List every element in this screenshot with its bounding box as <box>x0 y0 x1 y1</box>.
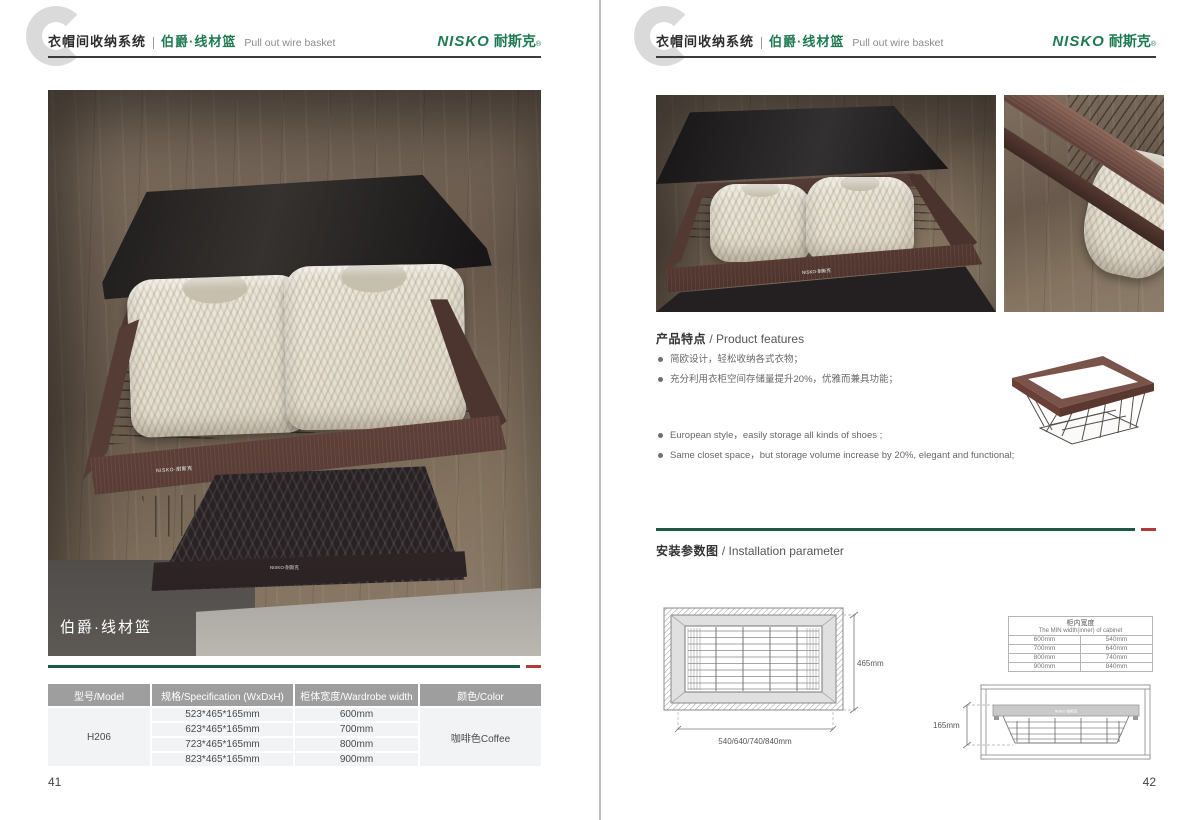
folded-sweater <box>127 274 310 439</box>
spec-cell: 623*465*165mm <box>152 723 293 736</box>
table-row: 700mm640mm <box>1009 645 1153 654</box>
color-cell: 咖啡色Coffee <box>420 708 541 766</box>
table-row: 600mm540mm <box>1009 636 1153 645</box>
registered-mark: ® <box>536 41 541 48</box>
page-divider-line <box>599 0 601 820</box>
brand-logo-cn: 耐斯克 <box>494 31 536 51</box>
width-dimension-label: 540/640/740/840mm <box>718 737 792 746</box>
folded-sweater <box>806 177 915 262</box>
min-width-table-header: 柜内宽度 The MIN width(inner) of cabinet <box>1009 617 1153 636</box>
photo-caption: 伯爵·线材篮 <box>60 616 152 637</box>
width-cell: 700mm <box>295 723 418 736</box>
bullet-icon <box>658 433 663 438</box>
spec-table-header: 柜体宽度/Wardrobe width <box>295 684 418 706</box>
brand-logo-latin: NISKO <box>1052 33 1105 50</box>
brand-logo-cn: 耐斯克 <box>1109 31 1151 51</box>
installation-title-en: / Installation parameter <box>722 544 844 558</box>
bullet-icon <box>658 357 663 362</box>
separator-green-bar <box>656 528 1135 531</box>
spec-cell: 523*465*165mm <box>152 708 293 721</box>
tray-logo-text: NISKO·耐斯克 <box>270 565 299 571</box>
registered-mark: ® <box>1151 41 1156 48</box>
basket-top-photo: NISKO·耐斯克 <box>656 95 996 312</box>
features-list-cn: 简欧设计，轻松收纳各式衣物； 充分利用衣柜空间存储量提升20%，优雅而兼具功能； <box>656 354 996 394</box>
product-title-en: Pull out wire basket <box>852 37 943 49</box>
width-cell: 900mm <box>295 753 418 766</box>
spec-table-header: 型号/Model <box>48 684 150 706</box>
front-view-diagram: NISKO·耐斯克 165mm <box>933 679 1165 765</box>
product-title-cn: 伯爵·线材篮 <box>769 31 844 50</box>
spec-cell: 723*465*165mm <box>152 738 293 751</box>
height-dimension-label: 165mm <box>933 721 960 730</box>
brand-logo: NISKO 耐斯克 ® <box>437 31 541 51</box>
catalog-spread: 衣帽间收纳系统 伯爵·线材篮 Pull out wire basket NISK… <box>0 0 1200 820</box>
folded-sweater <box>283 264 466 431</box>
frame-detail-photo <box>1004 95 1164 312</box>
table-row: 800mm740mm <box>1009 654 1153 663</box>
separator-red-bar <box>526 665 541 668</box>
system-title: 衣帽间收纳系统 <box>656 31 754 50</box>
feature-item: 简欧设计，轻松收纳各式衣物； <box>656 354 996 367</box>
page-number: 42 <box>1128 775 1156 789</box>
min-width-table: 柜内宽度 The MIN width(inner) of cabinet 600… <box>1008 616 1153 672</box>
width-cell: 800mm <box>295 738 418 751</box>
features-title-cn: 产品特点 <box>656 332 706 346</box>
page-header-left: 衣帽间收纳系统 伯爵·线材篮 Pull out wire basket NISK… <box>48 31 541 55</box>
min-width-title-en: The MIN width(inner) of cabinet <box>1009 628 1152 634</box>
wire-basket-render <box>1000 328 1164 462</box>
product-title-cn: 伯爵·线材篮 <box>161 31 236 50</box>
bullet-icon <box>658 453 663 458</box>
spec-cell: 823*465*165mm <box>152 753 293 766</box>
width-cell: 600mm <box>295 708 418 721</box>
spec-table-header: 规格/Specification (WxDxH) <box>152 684 293 706</box>
features-title-en: / Product features <box>709 332 804 346</box>
header-rule <box>656 56 1156 58</box>
section-separator <box>656 528 1156 531</box>
separator-red-bar <box>1141 528 1156 531</box>
features-title: 产品特点 / Product features <box>656 330 804 347</box>
spec-table: 型号/Model 规格/Specification (WxDxH) 柜体宽度/W… <box>48 684 541 766</box>
rail-logo-text: NISKO·耐斯克 <box>1055 709 1078 714</box>
depth-dimension-label: 465mm <box>857 659 884 668</box>
folded-sweater <box>710 184 812 262</box>
header-divider <box>761 37 762 49</box>
page-number: 41 <box>48 775 61 789</box>
table-row: 900mm840mm <box>1009 663 1153 672</box>
installation-title-cn: 安装参数图 <box>656 544 719 558</box>
top-view-diagram: 465mm 540/640/740/840mm <box>654 598 888 756</box>
system-title: 衣帽间收纳系统 <box>48 31 146 50</box>
header-rule <box>48 56 541 58</box>
wardrobe-photo: NISKO·耐斯克 NISKO·耐斯克 伯爵·线材篮 <box>48 90 541 656</box>
brand-logo: NISKO 耐斯克 ® <box>1052 31 1156 51</box>
spec-table-header: 颜色/Color <box>420 684 541 706</box>
section-separator <box>48 665 541 668</box>
product-title-en: Pull out wire basket <box>244 37 335 49</box>
installation-title: 安装参数图 / Installation parameter <box>656 542 844 559</box>
header-divider <box>153 37 154 49</box>
min-width-title-cn: 柜内宽度 <box>1009 618 1152 628</box>
model-cell: H206 <box>48 708 150 766</box>
page-header-right: 衣帽间收纳系统 伯爵·线材篮 Pull out wire basket NISK… <box>656 31 1156 55</box>
separator-green-bar <box>48 665 520 668</box>
bullet-icon <box>658 377 663 382</box>
brand-logo-latin: NISKO <box>437 33 490 50</box>
feature-item: 充分利用衣柜空间存储量提升20%，优雅而兼具功能； <box>656 374 996 387</box>
